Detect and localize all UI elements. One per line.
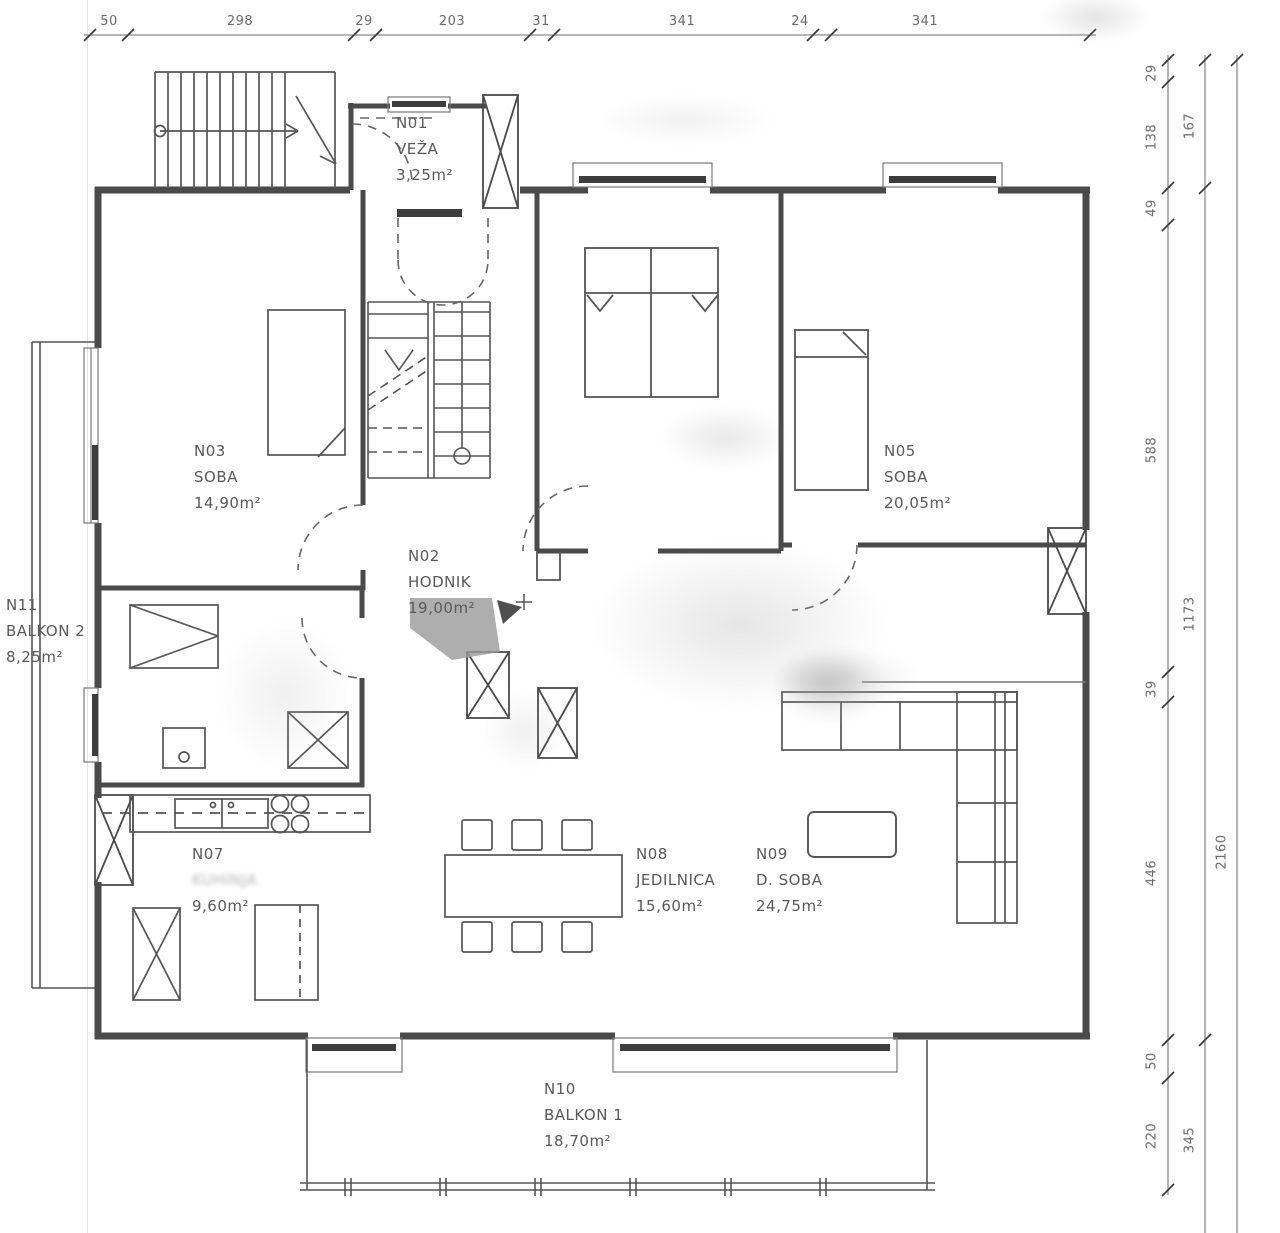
- window-bathroom: [84, 688, 98, 762]
- room-label-n02: N02 HODNIK 19,00m²: [408, 543, 475, 621]
- dim-value: 138: [1145, 124, 1160, 150]
- room-name: SOBA: [194, 464, 261, 490]
- room-id: N09: [756, 841, 823, 867]
- room-area: 14,90m²: [194, 490, 261, 516]
- room-name: JEDILNICA: [636, 867, 715, 893]
- room-label-n08: N08 JEDILNICA 15,60m²: [636, 841, 715, 919]
- single-bed: [795, 330, 868, 490]
- room-id: N11: [6, 592, 85, 618]
- room-name: BALKON 1: [544, 1102, 623, 1128]
- dim-value: 50: [1145, 1052, 1160, 1070]
- dim-value: 50: [100, 14, 118, 29]
- room-area: 20,05m²: [884, 490, 951, 516]
- room-label-n07: N07 KUHINJA 9,60m²: [192, 841, 257, 919]
- room-label-n09: N09 D. SOBA 24,75m²: [756, 841, 823, 919]
- room-name: D. SOBA: [756, 867, 823, 893]
- room-id: N10: [544, 1076, 623, 1102]
- dimension-chain-top: [84, 29, 1096, 41]
- room-area: 19,00m²: [408, 595, 475, 621]
- dim-value: 203: [439, 14, 465, 29]
- dim-value: 298: [227, 14, 253, 29]
- window-balcony1-right: [613, 1038, 897, 1072]
- floor-plan-canvas: N01 VEŽA 3,25m² N02 HODNIK 19,00m² N03 S…: [0, 0, 1280, 1233]
- dim-value: 588: [1145, 437, 1160, 463]
- room-id: N03: [194, 438, 261, 464]
- dim-value: 31: [532, 14, 550, 29]
- scan-smudge: [215, 620, 355, 770]
- kitchen-counter: [102, 795, 370, 833]
- dim-value: 29: [355, 14, 373, 29]
- dim-value: 24: [791, 14, 809, 29]
- room-id: N02: [408, 543, 475, 569]
- room-area: 24,75m²: [756, 893, 823, 919]
- room-label-n01: N01 VEŽA 3,25m²: [396, 110, 453, 188]
- dim-value: 220: [1145, 1123, 1160, 1149]
- dim-value: 341: [912, 14, 938, 29]
- dim-value: 446: [1145, 860, 1160, 886]
- room-label-n03: N03 SOBA 14,90m²: [194, 438, 261, 516]
- exterior-stair: [155, 72, 337, 190]
- room-area: 9,60m²: [192, 893, 257, 919]
- balcony2-door: [84, 348, 98, 523]
- dim-value: 49: [1145, 199, 1160, 217]
- dim-value: 39: [1145, 680, 1160, 698]
- room-name: SOBA: [884, 464, 951, 490]
- kitchen-cabinets: [133, 905, 318, 1000]
- window-balcony1-left: [306, 1038, 402, 1072]
- threshold-band: [397, 209, 462, 217]
- room-name: BALKON 2: [6, 618, 85, 644]
- room-id: N01: [396, 110, 453, 136]
- scan-smudge: [660, 405, 790, 470]
- room-id: N08: [636, 841, 715, 867]
- dim-value: 341: [669, 14, 695, 29]
- scan-smudge: [595, 95, 775, 145]
- room-name: HODNIK: [408, 569, 475, 595]
- room-label-n05: N05 SOBA 20,05m²: [884, 438, 951, 516]
- dim-value: 1173: [1183, 596, 1198, 631]
- double-bed: [585, 248, 718, 397]
- wardrobe-n03: [268, 310, 345, 457]
- room-area: 15,60m²: [636, 893, 715, 919]
- room-area: 3,25m²: [396, 162, 453, 188]
- room-label-n11: N11 BALKON 2 8,25m²: [6, 592, 85, 670]
- room-id: N05: [884, 438, 951, 464]
- masonry-pier-top: [483, 95, 518, 208]
- room-area: 8,25m²: [6, 644, 85, 670]
- room-name: VEŽA: [396, 136, 453, 162]
- interior-stair: [368, 302, 490, 478]
- scan-smudge: [480, 690, 570, 770]
- room-name: KUHINJA: [192, 867, 257, 893]
- scan-smudge: [778, 655, 868, 710]
- dimension-chain-right: [1162, 54, 1243, 1233]
- window-room-n05: [883, 163, 1002, 187]
- window-bedroom-mid: [573, 163, 712, 187]
- dim-value: 345: [1183, 1127, 1198, 1153]
- dining-set: [445, 820, 622, 952]
- dim-value: 167: [1183, 113, 1198, 139]
- room-label-n10: N10 BALKON 1 18,70m²: [544, 1076, 623, 1154]
- room-id: N07: [192, 841, 257, 867]
- room-area: 18,70m²: [544, 1128, 623, 1154]
- dim-value: 29: [1145, 64, 1160, 82]
- dim-value: 2160: [1215, 834, 1230, 869]
